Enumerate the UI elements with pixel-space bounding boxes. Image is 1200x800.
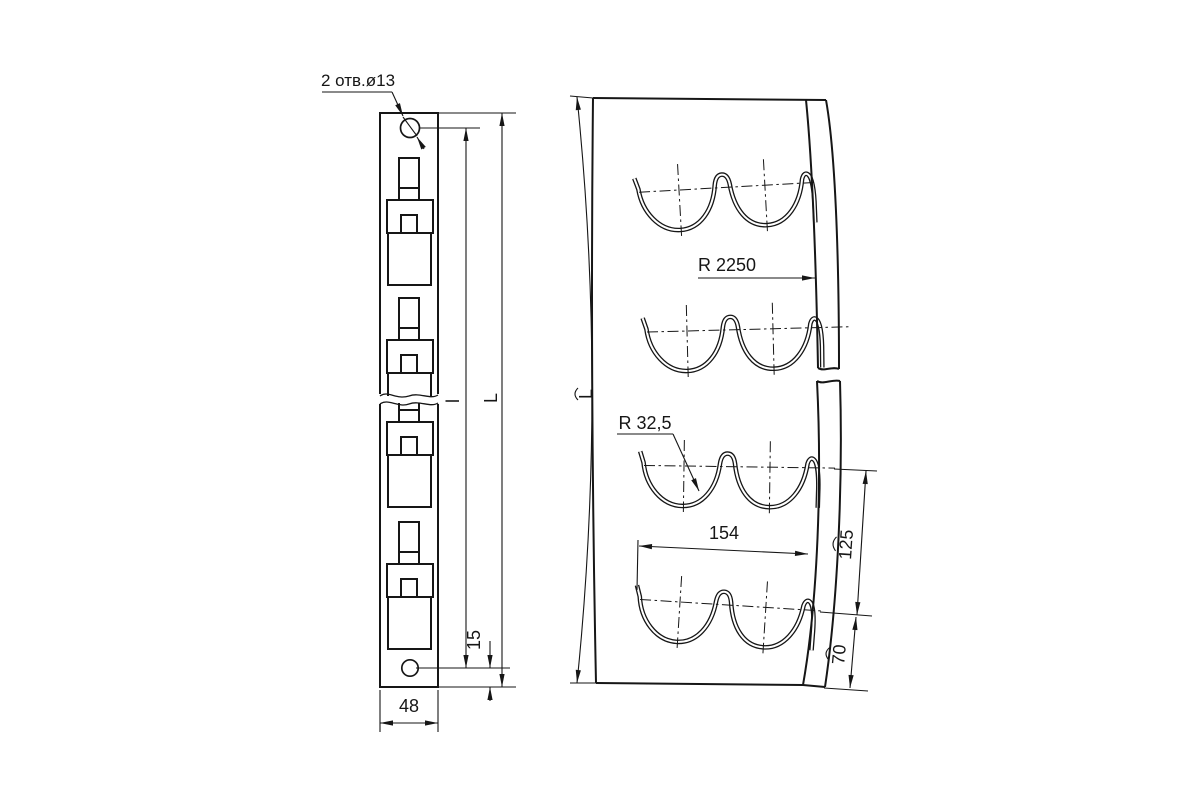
cutout-pitch-label-group: 125 xyxy=(832,529,857,561)
cutout-end-offset-label-group: 70 xyxy=(825,643,850,665)
right-view-dimensions: R 2250 R 32,5 154 L 125 70 xyxy=(570,96,877,691)
strip-width-label: 48 xyxy=(399,696,419,716)
drawing-sheet: 2 отв.ø13 48 15 l L xyxy=(0,0,1200,800)
mounting-hole-bottom xyxy=(402,660,418,676)
bend-radius-label: R 2250 xyxy=(698,255,756,275)
cutout-2 xyxy=(642,301,850,378)
extension-lines xyxy=(570,96,877,691)
developed-length-label: L xyxy=(576,389,596,399)
left-view xyxy=(380,113,438,687)
cutout-1 xyxy=(634,156,819,238)
cutout-width-label: 154 xyxy=(709,523,739,543)
developed-length-label-group: L xyxy=(575,388,596,400)
hole-leader xyxy=(322,92,424,149)
cutout-4 xyxy=(633,573,823,657)
cutout-radius-label: R 32,5 xyxy=(618,413,671,433)
cutout-radius-leader xyxy=(617,434,699,491)
cutout-end-offset-label: 70 xyxy=(828,644,850,666)
plate-outline xyxy=(592,98,826,687)
cutout-pitch-label: 125 xyxy=(835,529,857,560)
holes-note-label: 2 отв.ø13 xyxy=(321,71,395,90)
overall-length-label: L xyxy=(481,393,501,403)
clamp-profile xyxy=(387,298,433,425)
clamp-profiles-upper xyxy=(387,158,433,425)
dim-line-cutout-width xyxy=(639,546,808,554)
cutout-3 xyxy=(639,439,835,514)
clamp-profile xyxy=(387,522,433,649)
technical-drawing: 2 отв.ø13 48 15 l L xyxy=(0,0,1200,800)
right-view xyxy=(592,98,850,687)
dim-line-cutout-end-offset xyxy=(850,617,856,688)
clamp-profile xyxy=(387,158,433,285)
hole-edge-offset-label: 15 xyxy=(464,630,484,650)
dim-line-cutout-pitch xyxy=(857,471,866,615)
clamp-profile xyxy=(387,380,433,507)
hole-spacing-label: l xyxy=(443,399,463,403)
clamp-profiles-lower xyxy=(387,380,433,649)
